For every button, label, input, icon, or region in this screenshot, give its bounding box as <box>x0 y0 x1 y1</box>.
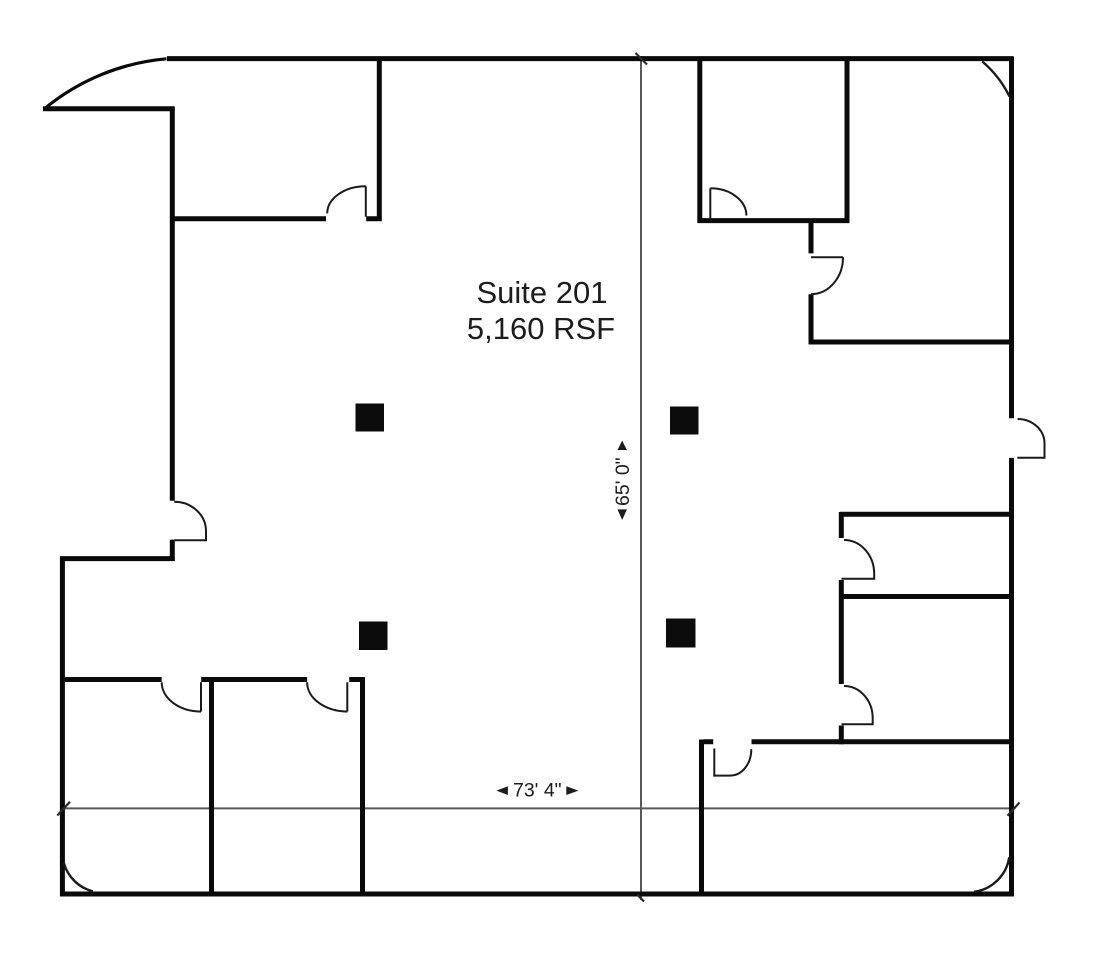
svg-text:5,160 RSF: 5,160 RSF <box>467 311 615 346</box>
svg-text:65' 0": 65' 0" <box>612 457 634 506</box>
svg-text:73' 4": 73' 4" <box>513 780 562 802</box>
svg-text:Suite 201: Suite 201 <box>477 275 608 310</box>
